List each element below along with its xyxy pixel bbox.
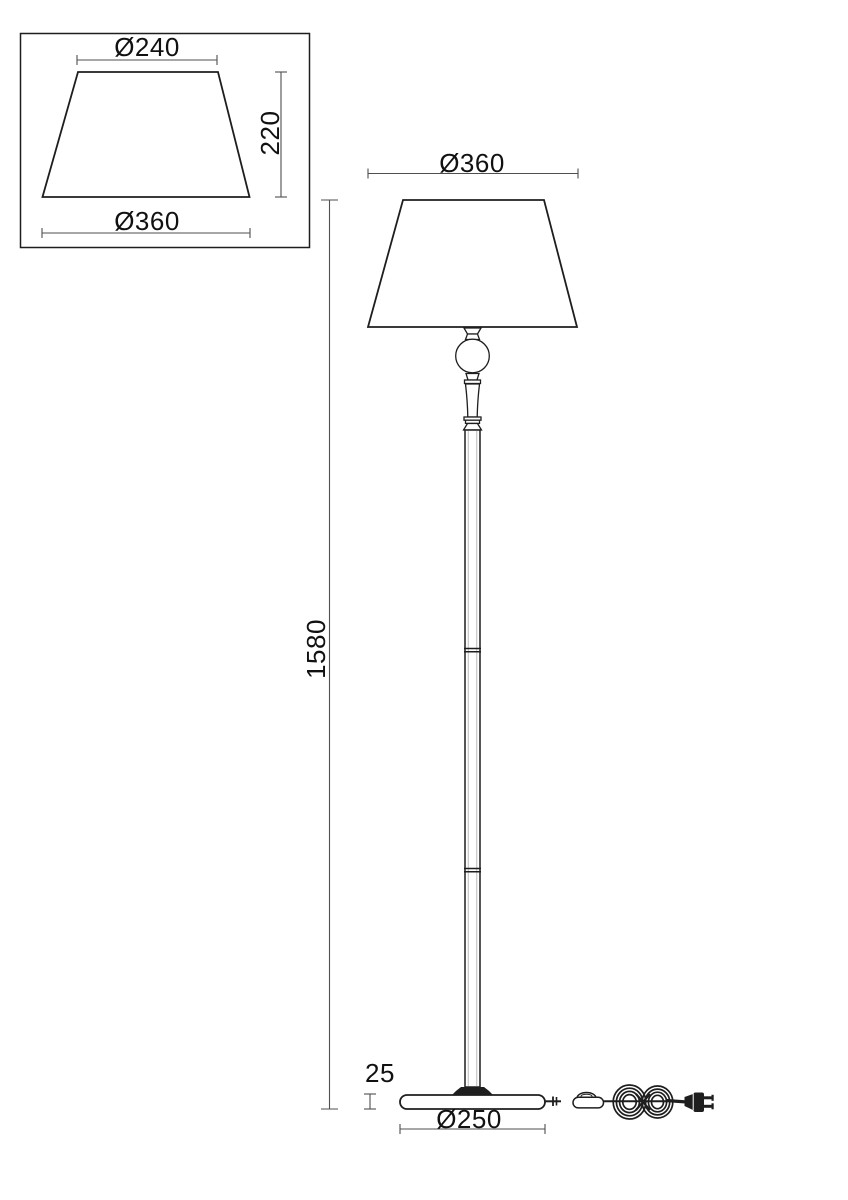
lamp-technical-drawing: Ø240 220 Ø360 Ø360 1580 25 Ø250 <box>0 0 848 1200</box>
lamp-finial <box>456 328 490 430</box>
lamp-pole <box>464 430 481 1087</box>
floor-lamp-drawing <box>368 200 714 1119</box>
plug-prongs <box>704 1095 714 1110</box>
power-cord <box>545 1085 714 1119</box>
lamp-column <box>466 384 480 417</box>
detail-shade-outline <box>43 72 250 197</box>
drawing-linework <box>0 0 848 1200</box>
pole-base-flange <box>452 1087 493 1095</box>
lamp-sphere <box>456 339 490 373</box>
base-height-dimension <box>364 1094 376 1109</box>
dim-label-shade-diameter: Ø360 <box>439 150 505 176</box>
cord-coil <box>613 1085 673 1119</box>
dim-label-detail-bottom-diameter: Ø360 <box>114 208 180 234</box>
power-plug <box>685 1093 714 1113</box>
lamp-shade-outline <box>368 200 577 327</box>
foot-switch <box>573 1093 604 1108</box>
dim-label-detail-top-diameter: Ø240 <box>114 34 180 60</box>
dim-label-base-diameter: Ø250 <box>436 1106 502 1132</box>
dim-label-base-height: 25 <box>365 1060 395 1086</box>
dim-label-detail-height: 220 <box>257 111 283 156</box>
dim-label-total-height: 1580 <box>303 619 329 679</box>
